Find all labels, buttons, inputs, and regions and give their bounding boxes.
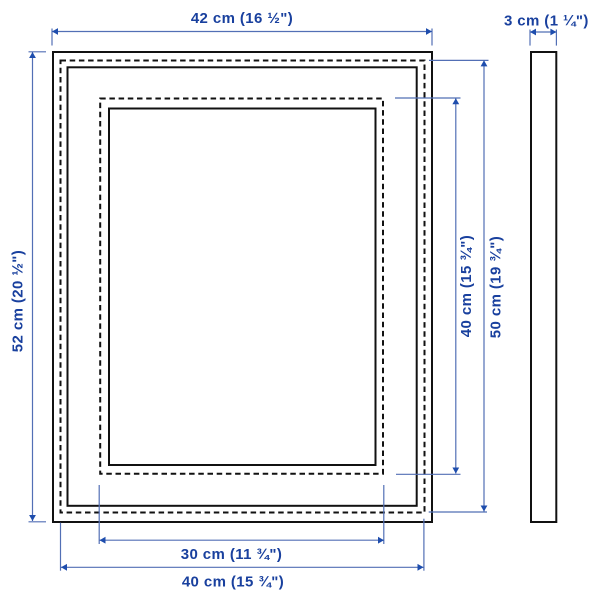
- svg-text:30 cm (11 ¾"): 30 cm (11 ¾"): [181, 546, 283, 563]
- svg-text:3 cm (1 ¼"): 3 cm (1 ¼"): [504, 13, 589, 30]
- svg-text:40 cm (15 ¾"): 40 cm (15 ¾"): [182, 573, 284, 590]
- svg-text:40 cm (15 ¾"): 40 cm (15 ¾"): [458, 235, 475, 337]
- svg-text:42 cm (16 ½"): 42 cm (16 ½"): [191, 10, 293, 27]
- svg-text:50 cm (19 ¾"): 50 cm (19 ¾"): [488, 236, 505, 338]
- svg-text:52 cm (20 ½"): 52 cm (20 ½"): [10, 250, 27, 352]
